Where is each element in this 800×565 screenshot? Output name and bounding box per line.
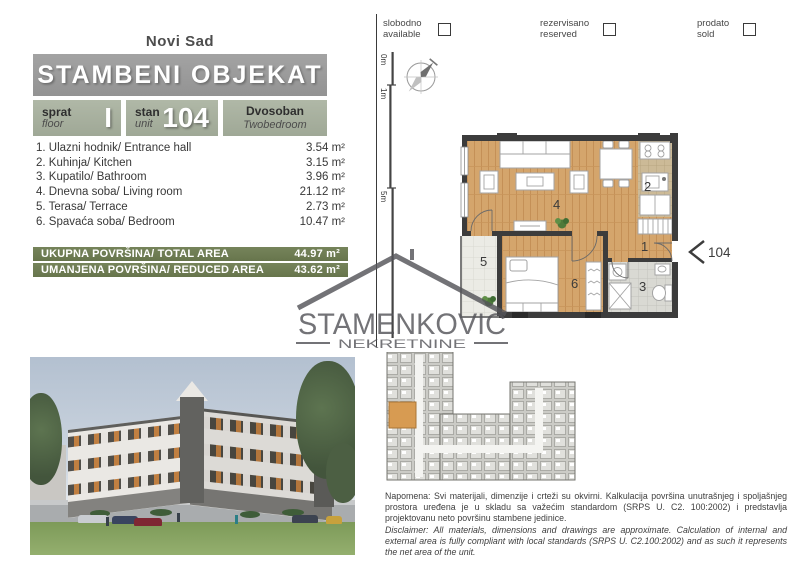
room-number-hall: 1: [641, 239, 648, 254]
person: [177, 513, 180, 522]
legend-item-available: slobodno available: [383, 19, 422, 40]
legend-item-reserved: rezervisano reserved: [540, 19, 589, 40]
building-left-facade: [68, 415, 190, 518]
city-title: Novi Sad: [33, 33, 327, 50]
room-row: 5. Terasa/ Terrace 2.73 m²: [36, 200, 345, 215]
room-area: 3.96 m²: [306, 170, 345, 185]
disclaimer-sr: Napomena: Svi materijali, dimenzije i cr…: [385, 491, 787, 525]
room-area: 21.12 m²: [300, 185, 345, 200]
person: [106, 517, 109, 526]
room-row: 2. Kuhinja/ Kitchen 3.15 m²: [36, 156, 345, 171]
room-row: 3. Kupatilo/ Bathroom 3.96 m²: [36, 170, 345, 185]
project-title-bar: STAMBENI OBJEKAT: [33, 54, 327, 96]
grass: [30, 522, 355, 555]
room-name: 3. Kupatilo/ Bathroom: [36, 170, 147, 185]
person: [235, 515, 238, 524]
scale-label-0m: 0m: [379, 54, 388, 65]
room-number-bedroom: 6: [571, 276, 578, 291]
legend-label-en: sold: [697, 30, 729, 41]
armchair: [480, 171, 498, 193]
tv-stand: [514, 221, 546, 231]
unit-label-sr: stan: [135, 106, 160, 119]
unit-pointer: 104: [690, 241, 731, 263]
unit-type-cell: Dvosoban Twobedroom: [223, 100, 327, 136]
kitchen-cabinet: [640, 195, 670, 215]
agency-watermark: STAMENKOVIC NEKRETNINE: [288, 246, 518, 356]
room-area: 10.47 m²: [300, 215, 345, 230]
project-title: STAMBENI OBJEKAT: [37, 61, 322, 90]
room-name: 2. Kuhinja/ Kitchen: [36, 156, 132, 171]
reduced-area-label: UMANJENA POVRŠINA/ REDUCED AREA: [41, 264, 264, 276]
total-area-label: UKUPNA POVRŠINA/ TOTAL AREA: [41, 248, 229, 260]
flyer-page: Novi Sad STAMBENI OBJEKAT sprat floor I …: [0, 0, 800, 565]
legend-checkbox-sold: [743, 23, 756, 36]
coffee-table: [516, 173, 554, 190]
legend-item-sold: prodato sold: [697, 19, 729, 40]
legend-label-en: available: [383, 30, 422, 41]
scale-label-1m: 1m: [379, 88, 388, 99]
watermark-name: STAMENKOVIC: [298, 308, 506, 341]
building-render-image: [30, 357, 355, 555]
room-number-living: 4: [553, 197, 560, 212]
disclaimer: Napomena: Svi materijali, dimenzije i cr…: [385, 491, 787, 558]
legend-checkbox-available: [438, 23, 451, 36]
site-plan-highlighted-unit: [389, 402, 416, 428]
room-name: 5. Terasa/ Terrace: [36, 200, 128, 215]
unit-type-sr: Dvosoban: [246, 105, 304, 118]
roof-logo-icon: [298, 256, 506, 314]
bush: [240, 511, 260, 518]
room-name: 4. Dnevna soba/ Living room: [36, 185, 182, 200]
legend-checkbox-reserved: [603, 23, 616, 36]
unit-info-row: sprat floor I stan unit 104 Dvosoban Two…: [33, 100, 327, 136]
bush: [150, 509, 172, 516]
watermark-subtitle: NEKRETNINE: [338, 339, 467, 351]
room-area: 3.15 m²: [306, 156, 345, 171]
tree: [326, 443, 355, 503]
hall-closet: [638, 219, 672, 234]
disclaimer-en: Disclaimer: All materials, dimensions an…: [385, 525, 787, 559]
car: [326, 516, 342, 524]
scale-label-5m: 5m: [379, 191, 388, 202]
room-area: 3.54 m²: [306, 141, 345, 156]
legend-label-en: reserved: [540, 30, 589, 41]
sofa: [500, 141, 570, 168]
floor-value: I: [104, 102, 112, 134]
compass-icon: [400, 54, 442, 98]
toilet: [653, 285, 673, 301]
room-list: 1. Ulazni hodnik/ Entrance hall 3.54 m² …: [36, 141, 345, 229]
unit-label-en: unit: [135, 119, 160, 131]
room-name: 1. Ulazni hodnik/ Entrance hall: [36, 141, 191, 156]
shower: [609, 283, 631, 309]
building-corner-bay: [180, 397, 204, 503]
floor-label-en: floor: [42, 119, 71, 131]
floor-cell: sprat floor I: [33, 100, 121, 136]
wardrobe: [586, 262, 601, 310]
unit-type-en: Twobedroom: [243, 119, 306, 131]
car: [134, 518, 162, 526]
unit-cell: stan unit 104: [126, 100, 218, 136]
floor-label-sr: sprat: [42, 106, 71, 119]
stove: [640, 142, 670, 159]
room-row: 6. Spavaća soba/ Bedroom 10.47 m²: [36, 215, 345, 230]
room-area: 2.73 m²: [306, 200, 345, 215]
room-row: 4. Dnevna soba/ Living room 21.12 m²: [36, 185, 345, 200]
room-number-kitchen: 2: [644, 179, 651, 194]
bathroom-sink: [655, 264, 670, 275]
room-row: 1. Ulazni hodnik/ Entrance hall 3.54 m²: [36, 141, 345, 156]
chevron-left-icon: [690, 241, 704, 263]
unit-pointer-label: 104: [708, 245, 731, 260]
room-number-bathroom: 3: [639, 279, 646, 294]
car: [78, 515, 108, 523]
armchair: [570, 171, 588, 193]
room-name: 6. Spavaća soba/ Bedroom: [36, 215, 175, 230]
site-plan: [385, 352, 587, 482]
car: [292, 515, 318, 523]
unit-value: 104: [162, 102, 209, 134]
